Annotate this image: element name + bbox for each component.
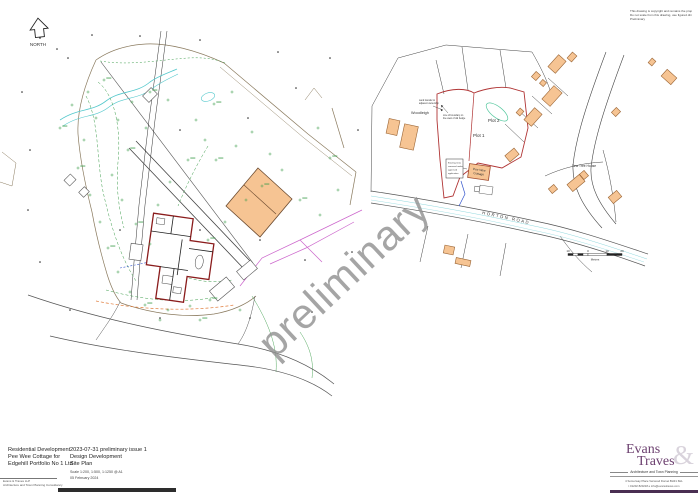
drawing-sheet: NORTH xyxy=(0,0,700,495)
annotation-note3: Existing trees removed under approved ap… xyxy=(446,159,467,178)
logo-name-traves: Traves xyxy=(637,455,698,469)
svg-text:Line of boundary on: Line of boundary on xyxy=(443,114,464,117)
yew-tree-house-label: Yew Tree House xyxy=(572,164,596,168)
plot2-label: Plot 2 xyxy=(488,118,500,123)
evans-traves-logo: & Evans Traves Architecture and Town Pla… xyxy=(610,443,698,493)
stream-line xyxy=(60,69,216,126)
project-line: Pee Wee Cottage for xyxy=(8,454,73,461)
plot1-label: Plot 1 xyxy=(473,133,485,138)
side-road xyxy=(573,52,624,228)
project-line: Edgehill Portfolio No 1 Ltd xyxy=(8,461,73,468)
stage-line: Design Development xyxy=(70,454,147,461)
title-block-bar xyxy=(58,488,176,492)
annotation-note1: Land transfer to adjacent ownership xyxy=(419,99,443,111)
location-buildings xyxy=(386,52,677,266)
svg-text:removed under: removed under xyxy=(448,165,463,168)
disclaimer-line: Preliminary xyxy=(630,17,692,21)
date-line: 05 February 2024 xyxy=(70,476,147,480)
existing-building xyxy=(226,168,292,237)
disclaimer-note: This drawing is copyright and remains th… xyxy=(630,9,692,21)
scale-line: Scale 1:200, 1:500, 1:1250 @ A1 xyxy=(70,470,147,474)
logo-contact: t 01202 820218 e info@evanstraves.com xyxy=(610,484,698,488)
svg-text:application: application xyxy=(448,172,459,175)
north-arrow-icon xyxy=(29,17,49,38)
svg-text:0: 0 xyxy=(587,249,589,253)
svg-text:Land transfer to: Land transfer to xyxy=(419,99,436,102)
svg-text:20: 20 xyxy=(620,249,624,253)
firm-subtitle: Architecture and Town Planning Consultan… xyxy=(3,484,62,488)
north-label: NORTH xyxy=(30,42,46,47)
svg-text:Existing trees: Existing trees xyxy=(448,162,462,165)
title-block-project: Residential Development Pee Wee Cottage … xyxy=(8,447,73,468)
logo-address: 4 Somerway Place Verwood Dorset BH31 6HL xyxy=(610,479,698,483)
svg-text:adjacent ownership: adjacent ownership xyxy=(419,102,440,105)
pee-wee-cottage-building: Pee Wee Cottage xyxy=(468,164,491,181)
svg-text:approved: approved xyxy=(448,169,458,172)
logo-divider xyxy=(610,476,698,477)
title-block-issue: 2023-07-31 preliminary issue 1 Design De… xyxy=(70,447,147,481)
blue-boundary xyxy=(459,181,465,206)
annotation-note2: Line of boundary on line west of old hed… xyxy=(441,105,466,120)
logo-bar xyxy=(610,490,698,493)
project-line: Residential Development xyxy=(8,447,73,454)
svg-text:10: 10 xyxy=(566,249,570,253)
svg-text:line west of old hedge: line west of old hedge xyxy=(443,117,466,120)
woodleigh-label: Woodleigh xyxy=(411,111,429,115)
proposed-building xyxy=(142,213,217,305)
drawing-title: Site Plan xyxy=(70,461,147,468)
horton-road-label: HORTON ROAD xyxy=(482,210,531,225)
title-block-firm: Evans & Traves LLP Architecture and Town… xyxy=(3,480,62,488)
issue-line: 2023-07-31 preliminary issue 1 xyxy=(70,447,147,454)
cottage-garages xyxy=(474,185,493,195)
site-boundary-red xyxy=(437,87,528,198)
scale-bar: 10 0 10 20 Metres xyxy=(566,249,624,262)
svg-text:Metres: Metres xyxy=(591,258,600,262)
svg-text:10: 10 xyxy=(605,249,609,253)
